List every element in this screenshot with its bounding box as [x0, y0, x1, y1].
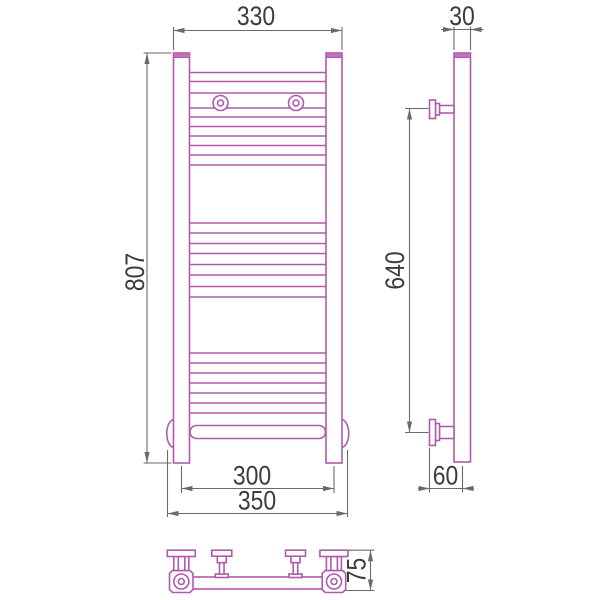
right-union-hole: [331, 579, 337, 585]
plug-cap-left: [213, 96, 228, 111]
side-view: [430, 53, 471, 462]
towel-radiator-technical-drawing: 330 807 300 350: [0, 0, 600, 600]
left-union-hole: [178, 579, 184, 585]
right-post: [326, 53, 342, 463]
rungs-bottom-group: [190, 353, 327, 413]
dim-label-top-width: 330: [237, 1, 275, 31]
left-leg-bracket: [167, 420, 174, 448]
middle-bracket-1: [212, 550, 232, 577]
dim-label-overall-depth: 75: [342, 558, 372, 584]
rungs-top-group: [190, 73, 327, 166]
dim-height: 807: [120, 53, 171, 463]
side-tube: [454, 53, 471, 462]
front-view: [167, 53, 349, 463]
dim-label-bottom-overall: 350: [238, 486, 276, 516]
dim-top-width: 330: [174, 1, 343, 50]
bottom-collector: [190, 426, 326, 439]
right-post-cap: [326, 53, 342, 58]
dim-label-bracket-span: 640: [380, 251, 410, 289]
left-post-cap: [174, 53, 190, 58]
dim-label-depth: 30: [449, 1, 475, 31]
bottom-view: [167, 550, 348, 592]
dim-bracket-span: 640: [380, 109, 428, 433]
right-leg-bracket: [342, 420, 349, 448]
lower-wall-bracket: [430, 420, 455, 446]
left-post: [174, 53, 190, 463]
bottom-view-tube: [190, 577, 326, 589]
side-tube-cap: [454, 53, 471, 58]
plug-cap-right: [289, 96, 304, 111]
dim-label-height: 807: [120, 253, 150, 291]
dim-label-wall-to-axis: 60: [433, 461, 459, 491]
upper-wall-bracket: [430, 100, 455, 119]
dim-depth: 30: [441, 1, 484, 50]
left-wall-bracket-bottom: [167, 550, 195, 570]
rungs-middle-group: [190, 223, 327, 297]
middle-bracket-2: [286, 550, 306, 577]
drawing-canvas: 330 807 300 350: [0, 0, 600, 600]
